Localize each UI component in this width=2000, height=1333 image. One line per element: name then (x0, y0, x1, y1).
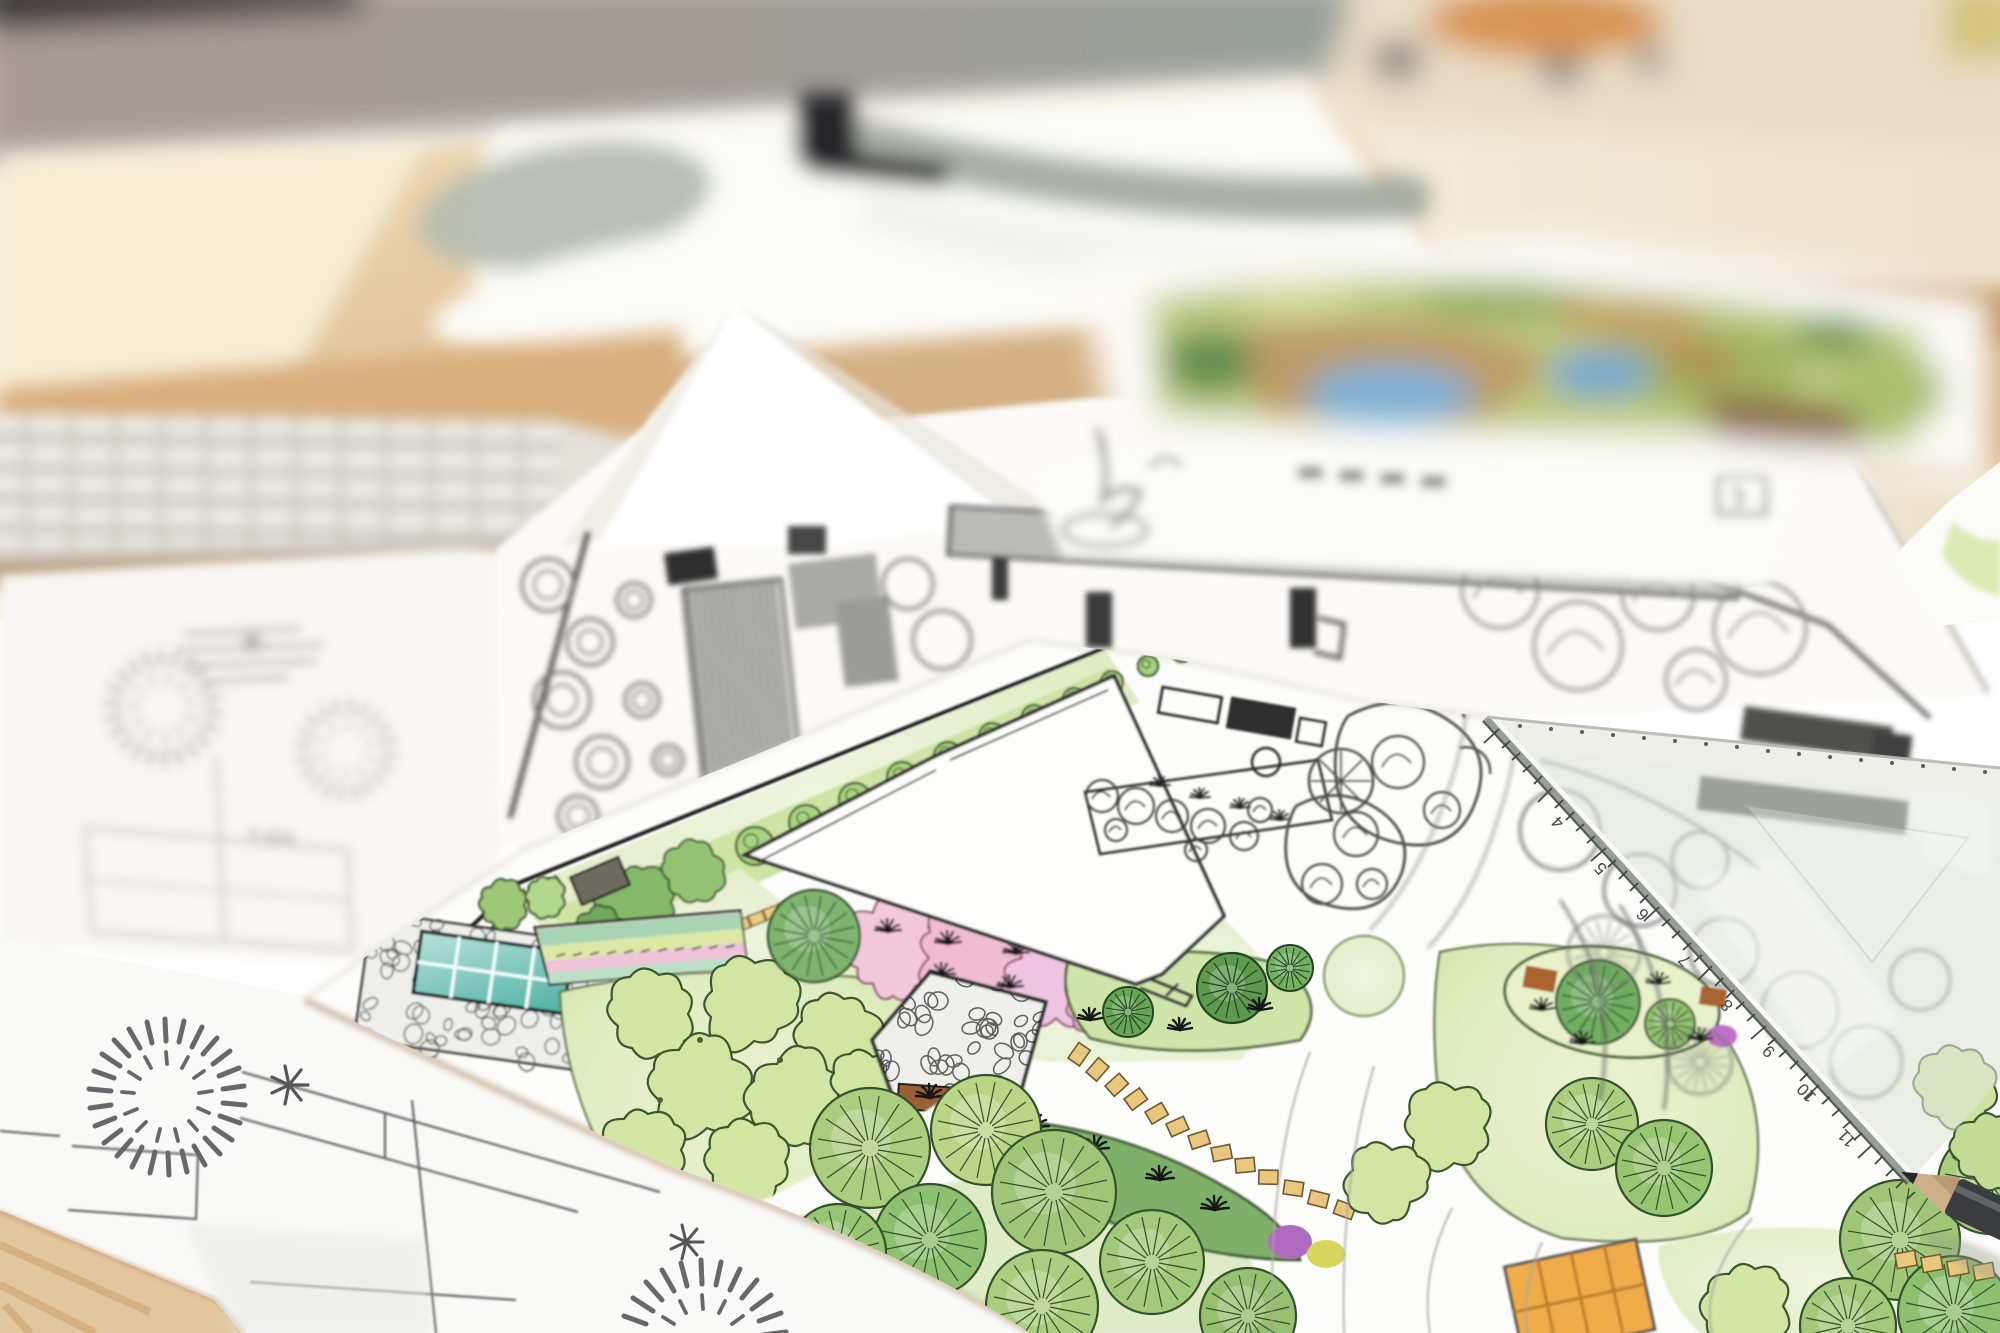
svg-text:5 605: 5 605 (248, 826, 297, 851)
